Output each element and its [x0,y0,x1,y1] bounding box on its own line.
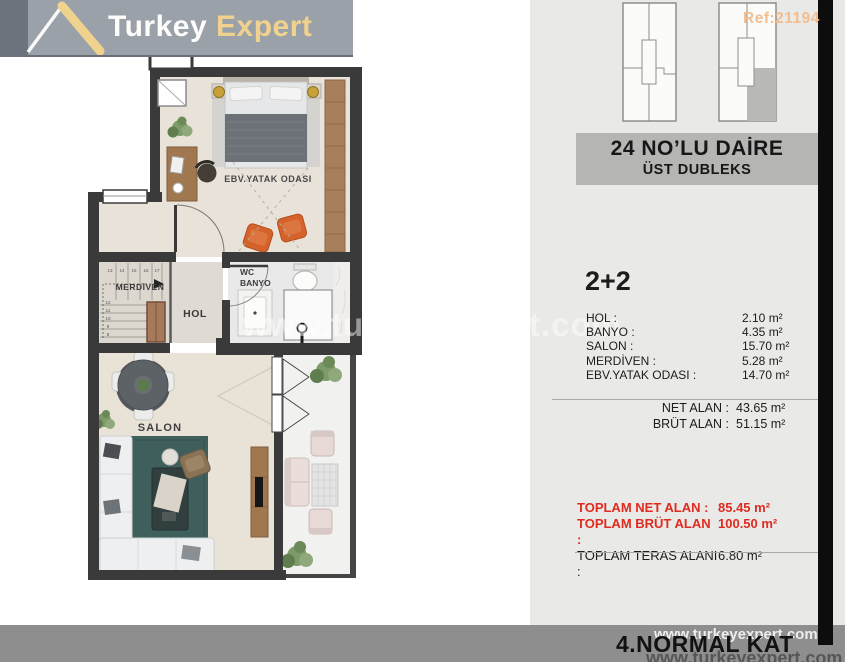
total-brut-row: TOPLAM BRÜT ALAN : 100.50 m² [577,516,818,548]
room-value: 5.28 m² [742,354,822,368]
divider-line [552,399,820,400]
bedroom-label: EBV.YATAK ODASI [224,174,312,184]
totals-block: TOPLAM NET ALAN : 85.45 m² TOPLAM BRÜT A… [577,500,818,580]
salon-label: SALON [138,422,183,434]
room-area-row: MERDİVEN : 5.28 m² [586,354,822,368]
hall-label: HOL [183,308,207,320]
door-leaf [174,205,177,252]
right-edge-stripe [818,0,833,645]
stairs-label: MERDİVEN [116,282,165,292]
room-area-row: EBV.YATAK ODASI : 14.70 m² [586,368,822,382]
toilet-tank [294,264,316,270]
svg-text:17: 17 [154,268,160,273]
svg-text:15: 15 [131,268,137,273]
bedside-lamp-icon [308,87,319,98]
room-area-row: SALON : 15.70 m² [586,339,822,353]
room-value: 2.10 m² [742,311,822,325]
bedside-lamp-icon [214,87,225,98]
room-value: 4.35 m² [742,325,822,339]
shaft [150,55,192,69]
net-label: NET ALAN : [586,401,736,417]
total-net-value: 85.45 m² [718,500,818,516]
brut-value: 51.15 m² [736,417,816,433]
wardrobe [325,80,345,252]
toilet [293,271,317,291]
watermark-center: www.turkeyexpert.com [242,306,622,344]
net-area-row: NET ALAN : 43.65 m² [586,401,816,417]
unit-type-label: 2+2 [585,266,631,297]
divider-line [575,552,820,553]
terrace-rug [312,464,338,506]
room-label: HOL : [586,311,742,325]
room-value: 15.70 m² [742,339,822,353]
net-value: 43.65 m² [736,401,816,417]
total-brut-label: TOPLAM BRÜT ALAN : [577,516,718,548]
room-value: 14.70 m² [742,368,822,382]
net-area-block: NET ALAN : 43.65 m² BRÜT ALAN : 51.15 m² [586,401,816,432]
roof-logo-icon [0,0,110,55]
watermark-band-bottom: www.turkeyexpert.com [646,648,842,662]
french-door [272,357,282,394]
apartment-title-bar: 24 NO’LU DAİRE ÜST DUBLEKS [576,133,818,185]
room-label: BANYO : [586,325,742,339]
french-door [272,395,282,432]
svg-text:11: 11 [106,308,111,313]
svg-text:12: 12 [105,300,111,305]
room-area-list: HOL : 2.10 m² BANYO : 4.35 m² SALON : 15… [586,311,822,382]
brand-name: Turkey Expert [108,10,312,44]
banyo-label: BANYO [240,278,271,288]
tv [255,477,263,507]
side-table [162,449,178,465]
total-brut-value: 100.50 m² [718,516,818,548]
wc-label: WC [240,267,254,277]
total-net-row: TOPLAM NET ALAN : 85.45 m² [577,500,818,516]
net-area-row: BRÜT ALAN : 51.15 m² [586,417,816,433]
room-label: EBV.YATAK ODASI : [586,368,742,382]
room-label: MERDİVEN : [586,354,742,368]
logo-band: Turkey Expert [0,0,353,57]
svg-text:14: 14 [119,268,125,273]
desk-chair [198,164,217,183]
brand-word-turkey: Turkey [108,10,207,43]
reference-number: Ref:21194 [743,10,820,28]
svg-text:16: 16 [143,268,149,273]
apartment-number-title: 24 NO’LU DAİRE [576,133,818,161]
brand-word-expert: Expert [216,10,312,43]
apartment-subtitle: ÜST DUBLEKS [576,162,818,178]
room-label: SALON : [586,339,742,353]
room-area-row: BANYO : 4.35 m² [586,325,822,339]
floorplan-page: 8 9 10 11 12 13 14 15 16 17 [0,0,845,662]
brut-label: BRÜT ALAN : [586,417,736,433]
svg-text:13: 13 [107,268,113,273]
total-net-label: TOPLAM NET ALAN : [577,500,718,516]
room-area-row: HOL : 2.10 m² [586,311,822,325]
keyplan-left [622,2,677,122]
svg-text:10: 10 [105,316,111,321]
